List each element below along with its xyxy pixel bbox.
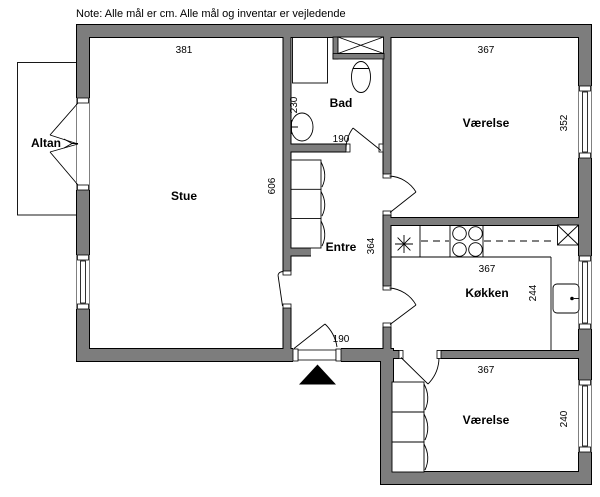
drain-star-icon <box>395 235 413 253</box>
dim-koekken-depth: 244 <box>528 284 539 301</box>
room-label-bad: Bad <box>330 96 353 110</box>
door-opening <box>383 286 392 327</box>
room-label-koekken: Køkken <box>465 286 508 300</box>
dim-vaerelse-top-width: 367 <box>478 45 495 56</box>
room-label-altan: Altan <box>31 136 61 150</box>
shaft-wall <box>333 54 384 60</box>
door-opening-vaerelse-top <box>383 174 392 215</box>
opening-cap <box>383 323 391 327</box>
opening-cap <box>78 98 89 103</box>
dim-koekken-width: 367 <box>479 264 496 275</box>
door-opening-stue <box>283 271 292 308</box>
opening-cap <box>580 256 591 261</box>
wardrobe-vaerelse-bottom-icon <box>392 382 428 472</box>
opening-cap <box>379 144 383 152</box>
shower-icon <box>293 38 328 84</box>
opening-cap <box>78 185 89 190</box>
dim-vaerelse-bottom-width: 367 <box>478 365 495 376</box>
door-opening <box>399 350 441 359</box>
dim-stue-depth: 606 <box>267 177 278 194</box>
opening-cap <box>580 447 591 452</box>
balcony-door-opening <box>77 98 90 190</box>
dim-entre-depth: 364 <box>366 237 377 254</box>
window-glass <box>583 92 588 152</box>
opening-cap <box>78 255 89 260</box>
opening-cap <box>580 324 591 329</box>
window-glass <box>583 386 588 446</box>
opening-cap <box>399 351 403 359</box>
opening-cap <box>283 271 291 275</box>
window-glass <box>81 261 86 303</box>
door-opening <box>283 271 292 308</box>
door-opening-koekken <box>383 286 392 327</box>
opening-cap <box>580 86 591 91</box>
door-opening-vaerelse-bottom <box>399 350 441 359</box>
opening-cap <box>336 349 341 361</box>
dim-bad-door: 190 <box>333 134 350 145</box>
room-label-entre: Entre <box>326 240 357 254</box>
window-glass <box>583 262 588 323</box>
room-label-stue: Stue <box>171 189 197 203</box>
wardrobe-entre-icon <box>291 160 325 248</box>
ventilation-shaft-icon <box>333 37 384 59</box>
window-vaerelse-bottom <box>579 380 592 452</box>
opening-cap <box>580 380 591 385</box>
entrance-sill <box>298 350 336 360</box>
opening-cap <box>437 351 441 359</box>
door-opening <box>383 174 392 215</box>
opening-cap <box>293 349 298 361</box>
window-koekken <box>579 256 592 329</box>
kitchen-sink-icon <box>553 284 579 313</box>
room-label-vaerelse-top: Værelse <box>463 116 510 130</box>
opening-cap <box>283 304 291 308</box>
dim-vaerelse-bottom-depth: 240 <box>559 410 570 427</box>
refrigerator-box-icon <box>558 225 579 245</box>
room-label-vaerelse-bottom: Værelse <box>463 413 510 427</box>
opening-cap <box>78 304 89 309</box>
window-vaerelse-top <box>579 86 592 158</box>
floor-plan-svg: Note: Alle mål er cm. Alle mål og invent… <box>0 0 600 497</box>
dim-vaerelse-top-depth: 352 <box>559 114 570 131</box>
entrance-opening <box>293 348 341 363</box>
bathroom-sink-icon <box>291 113 313 141</box>
dim-bad-depth: 230 <box>289 96 300 113</box>
plan-note: Note: Alle mål er cm. Alle mål og invent… <box>76 8 346 20</box>
opening-cap <box>383 211 391 215</box>
dim-entrance-width: 190 <box>333 334 350 345</box>
opening-cap <box>580 153 591 158</box>
floor-plan: Note: Alle mål er cm. Alle mål og invent… <box>0 0 600 497</box>
dim-stue-width: 381 <box>176 45 193 56</box>
toilet-icon <box>352 62 371 93</box>
window-stue-left <box>77 255 90 309</box>
